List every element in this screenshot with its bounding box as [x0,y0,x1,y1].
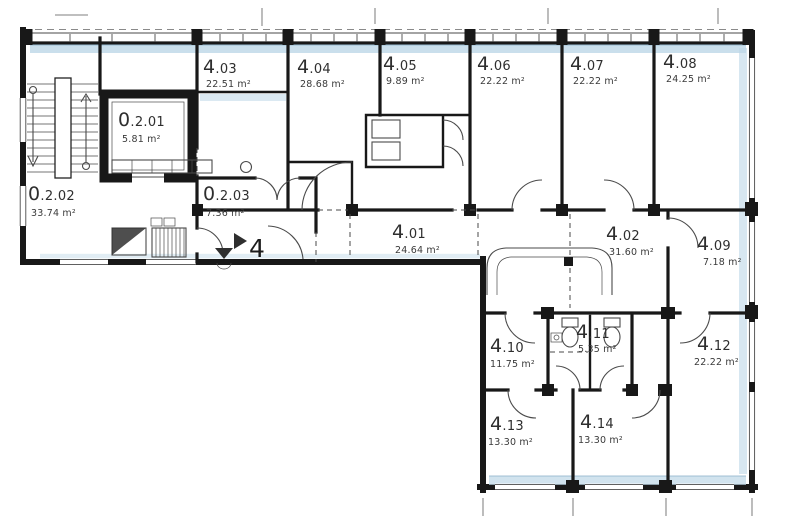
hall-furniture-outline [487,248,612,295]
room-0.2.01: 0.2.01 5.81 m² [118,109,165,145]
svg-text:7.36 m²: 7.36 m² [206,208,245,219]
svg-text:22.22 m²: 22.22 m² [480,76,525,87]
washbasin-icon [551,333,562,342]
svg-text:33.74 m²: 33.74 m² [31,208,76,219]
svg-text:4.06: 4.06 [477,53,511,75]
svg-text:22.22 m²: 22.22 m² [694,357,739,368]
svg-text:4.11: 4.11 [576,321,610,343]
ramp-panel [112,228,146,255]
room-4.10: 4.10 11.75 m² [490,335,535,370]
svg-text:5.81 m²: 5.81 m² [122,134,161,145]
svg-text:4.03: 4.03 [203,56,237,78]
level-marker-label: 4 [249,234,265,263]
svg-text:4.05: 4.05 [383,53,417,75]
svg-text:4.13: 4.13 [490,413,524,435]
room-4.01: 4.01 24.64 m² [392,221,440,256]
svg-text:13.30 m²: 13.30 m² [578,435,623,446]
floor-plan-drawing: 4 0.2.01 5.81 m² 0.2.02 33.74 m² 0.2.03 … [0,0,800,520]
staircase [27,78,98,178]
bath-fixture [372,142,400,160]
room-4.14: 4.14 13.30 m² [578,411,623,446]
room-4.05: 4.05 9.89 m² [383,53,425,87]
svg-text:4.12: 4.12 [697,333,731,355]
room-4.03: 4.03 22.51 m² [203,56,251,90]
room-4.08: 4.08 24.25 m² [663,51,711,85]
level-marker: 4 [234,233,265,263]
stair-start-node [30,87,37,94]
svg-text:0.2.03: 0.2.03 [203,183,250,205]
drain-symbol-icon [215,248,233,269]
svg-text:7.18 m²: 7.18 m² [703,257,742,268]
svg-text:9.89 m²: 9.89 m² [386,76,425,87]
svg-text:11.75 m²: 11.75 m² [490,359,535,370]
room-4.06: 4.06 22.22 m² [477,53,525,87]
svg-text:22.51 m²: 22.51 m² [206,79,251,90]
svg-text:4.04: 4.04 [297,56,331,78]
grille-box [151,218,186,257]
room-4.11: 4.11 5.35 m² [576,321,617,355]
svg-text:5.35 m²: 5.35 m² [578,344,617,355]
svg-text:0.2.02: 0.2.02 [28,183,75,205]
room-4.07: 4.07 22.22 m² [570,53,618,87]
svg-text:24.64 m²: 24.64 m² [395,245,440,256]
svg-text:4.14: 4.14 [580,411,614,433]
svg-text:4.09: 4.09 [697,233,731,255]
stair-down-arrow [28,94,38,166]
room-4.09: 4.09 7.18 m² [697,233,742,268]
stair-start-node [83,163,90,170]
floor-plan-page: 4 0.2.01 5.81 m² 0.2.02 33.74 m² 0.2.03 … [0,0,800,520]
svg-text:31.60 m²: 31.60 m² [609,247,654,258]
svg-text:24.25 m²: 24.25 m² [666,74,711,85]
svg-text:4.08: 4.08 [663,51,697,73]
room-4.04: 4.04 28.68 m² [297,56,345,90]
svg-text:13.30 m²: 13.30 m² [488,437,533,448]
stair-up-arrow [81,94,91,162]
room-0.2.03: 0.2.03 7.36 m² [203,183,250,219]
svg-text:28.68 m²: 28.68 m² [300,79,345,90]
svg-text:4.01: 4.01 [392,221,426,243]
room-0.2.02: 0.2.02 33.74 m² [28,183,76,219]
bath-fixture [372,120,400,138]
svg-text:22.22 m²: 22.22 m² [573,76,618,87]
room-4.02: 4.02 31.60 m² [606,223,654,258]
svg-text:4.02: 4.02 [606,223,640,245]
level-arrow-icon [234,233,247,249]
room-4.12: 4.12 22.22 m² [694,333,739,368]
room-4.13: 4.13 13.30 m² [488,413,533,448]
svg-text:4.07: 4.07 [570,53,604,75]
